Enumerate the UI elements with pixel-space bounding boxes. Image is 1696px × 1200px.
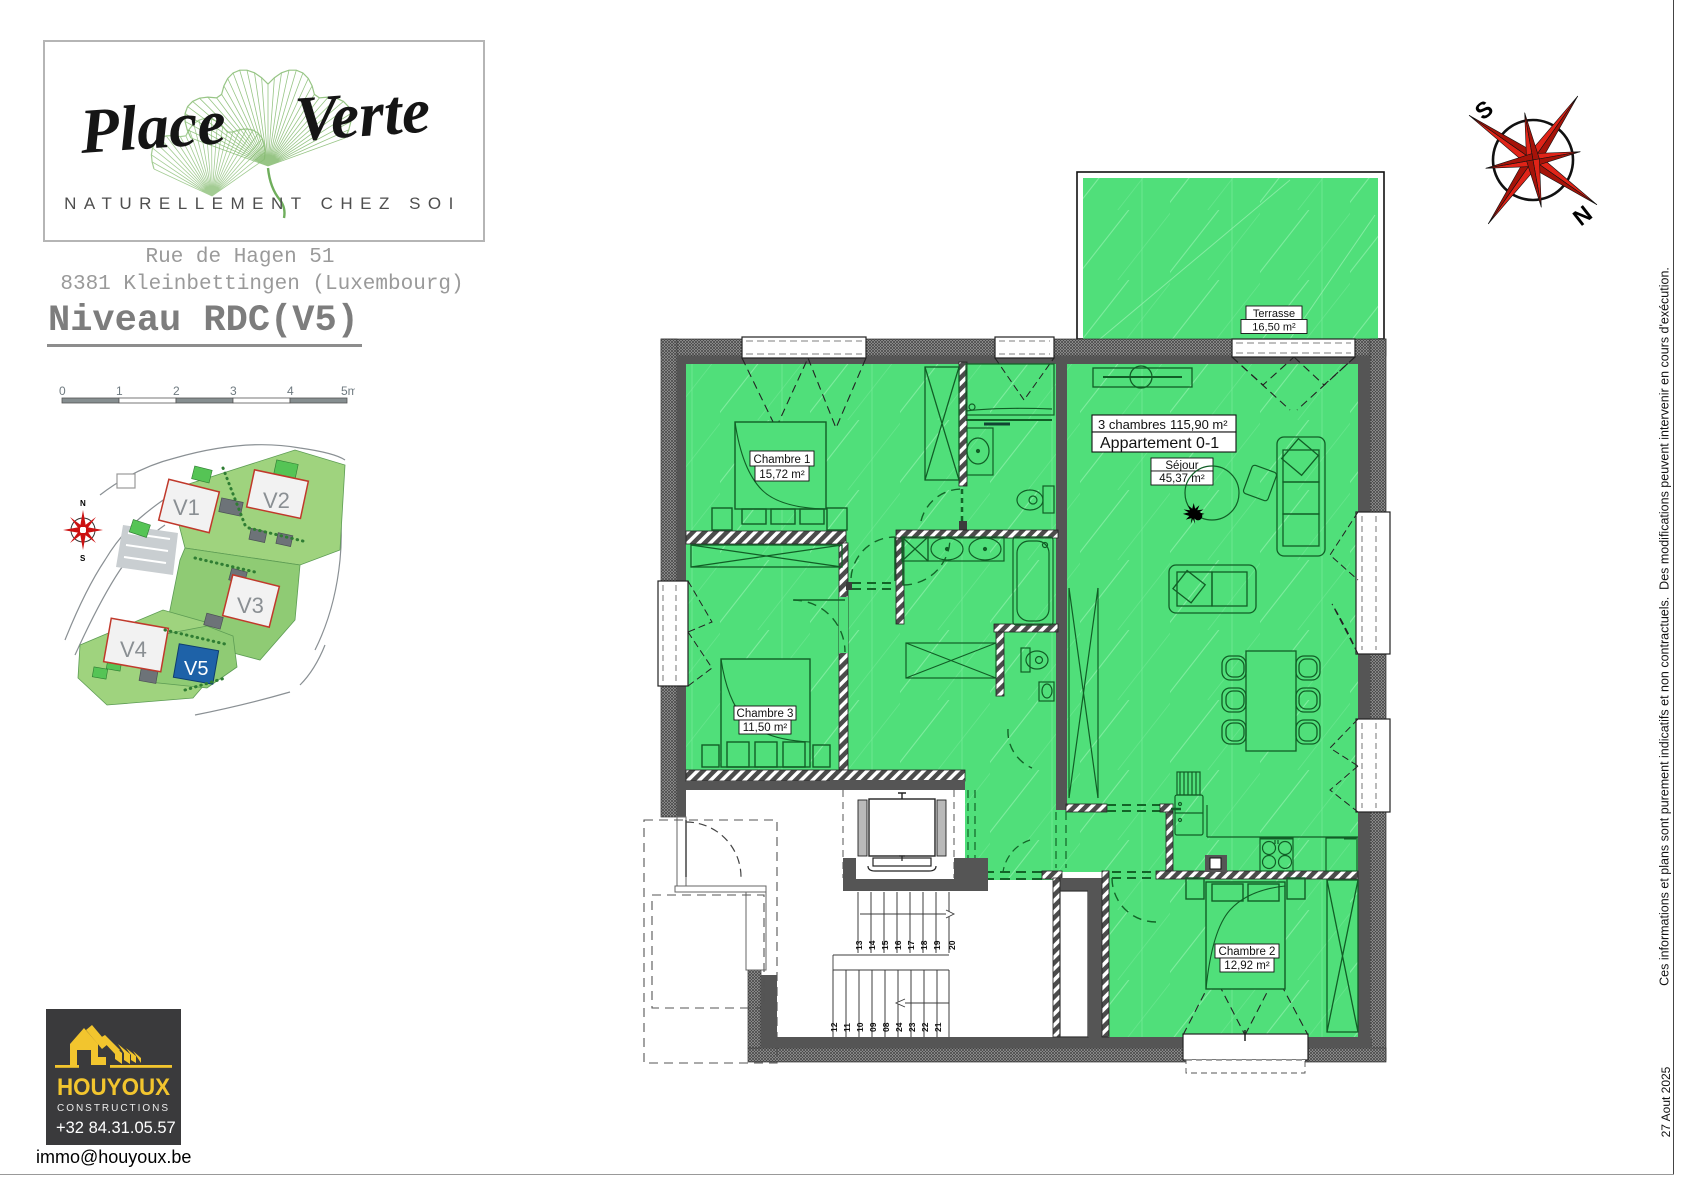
svg-text:13: 13: [854, 940, 864, 950]
svg-text:19: 19: [932, 940, 942, 950]
svg-text:Appartement 0-1: Appartement 0-1: [1100, 435, 1219, 452]
svg-text:18: 18: [919, 940, 929, 950]
svg-text:Chambre 1: Chambre 1: [754, 454, 811, 466]
svg-text:115,90 m²: 115,90 m²: [1170, 417, 1228, 432]
svg-text:16: 16: [893, 940, 903, 950]
svg-text:09: 09: [868, 1022, 878, 1032]
svg-text:20: 20: [947, 940, 957, 950]
svg-text:15: 15: [880, 940, 890, 950]
svg-text:Chambre 2: Chambre 2: [1219, 946, 1276, 958]
svg-text:45,37 m²: 45,37 m²: [1159, 473, 1205, 485]
svg-text:24: 24: [894, 1022, 904, 1032]
svg-text:22: 22: [920, 1022, 930, 1032]
svg-text:10: 10: [855, 1022, 865, 1032]
svg-text:16,50 m²: 16,50 m²: [1252, 322, 1296, 334]
svg-text:Terrasse: Terrasse: [1253, 308, 1295, 320]
svg-text:Séjour: Séjour: [1165, 460, 1198, 472]
svg-text:23: 23: [907, 1022, 917, 1032]
svg-text:3 chambres: 3 chambres: [1098, 417, 1166, 432]
svg-text:11: 11: [842, 1023, 852, 1032]
svg-text:21: 21: [933, 1022, 943, 1032]
svg-text:14: 14: [867, 940, 877, 950]
svg-text:12,92 m²: 12,92 m²: [1224, 960, 1270, 972]
svg-text:08: 08: [881, 1022, 891, 1032]
svg-text:11,50 m²: 11,50 m²: [743, 722, 788, 734]
svg-text:15,72 m²: 15,72 m²: [759, 469, 805, 481]
svg-text:12: 12: [829, 1022, 839, 1032]
svg-text:17: 17: [906, 940, 916, 950]
svg-text:Chambre 3: Chambre 3: [737, 708, 794, 720]
